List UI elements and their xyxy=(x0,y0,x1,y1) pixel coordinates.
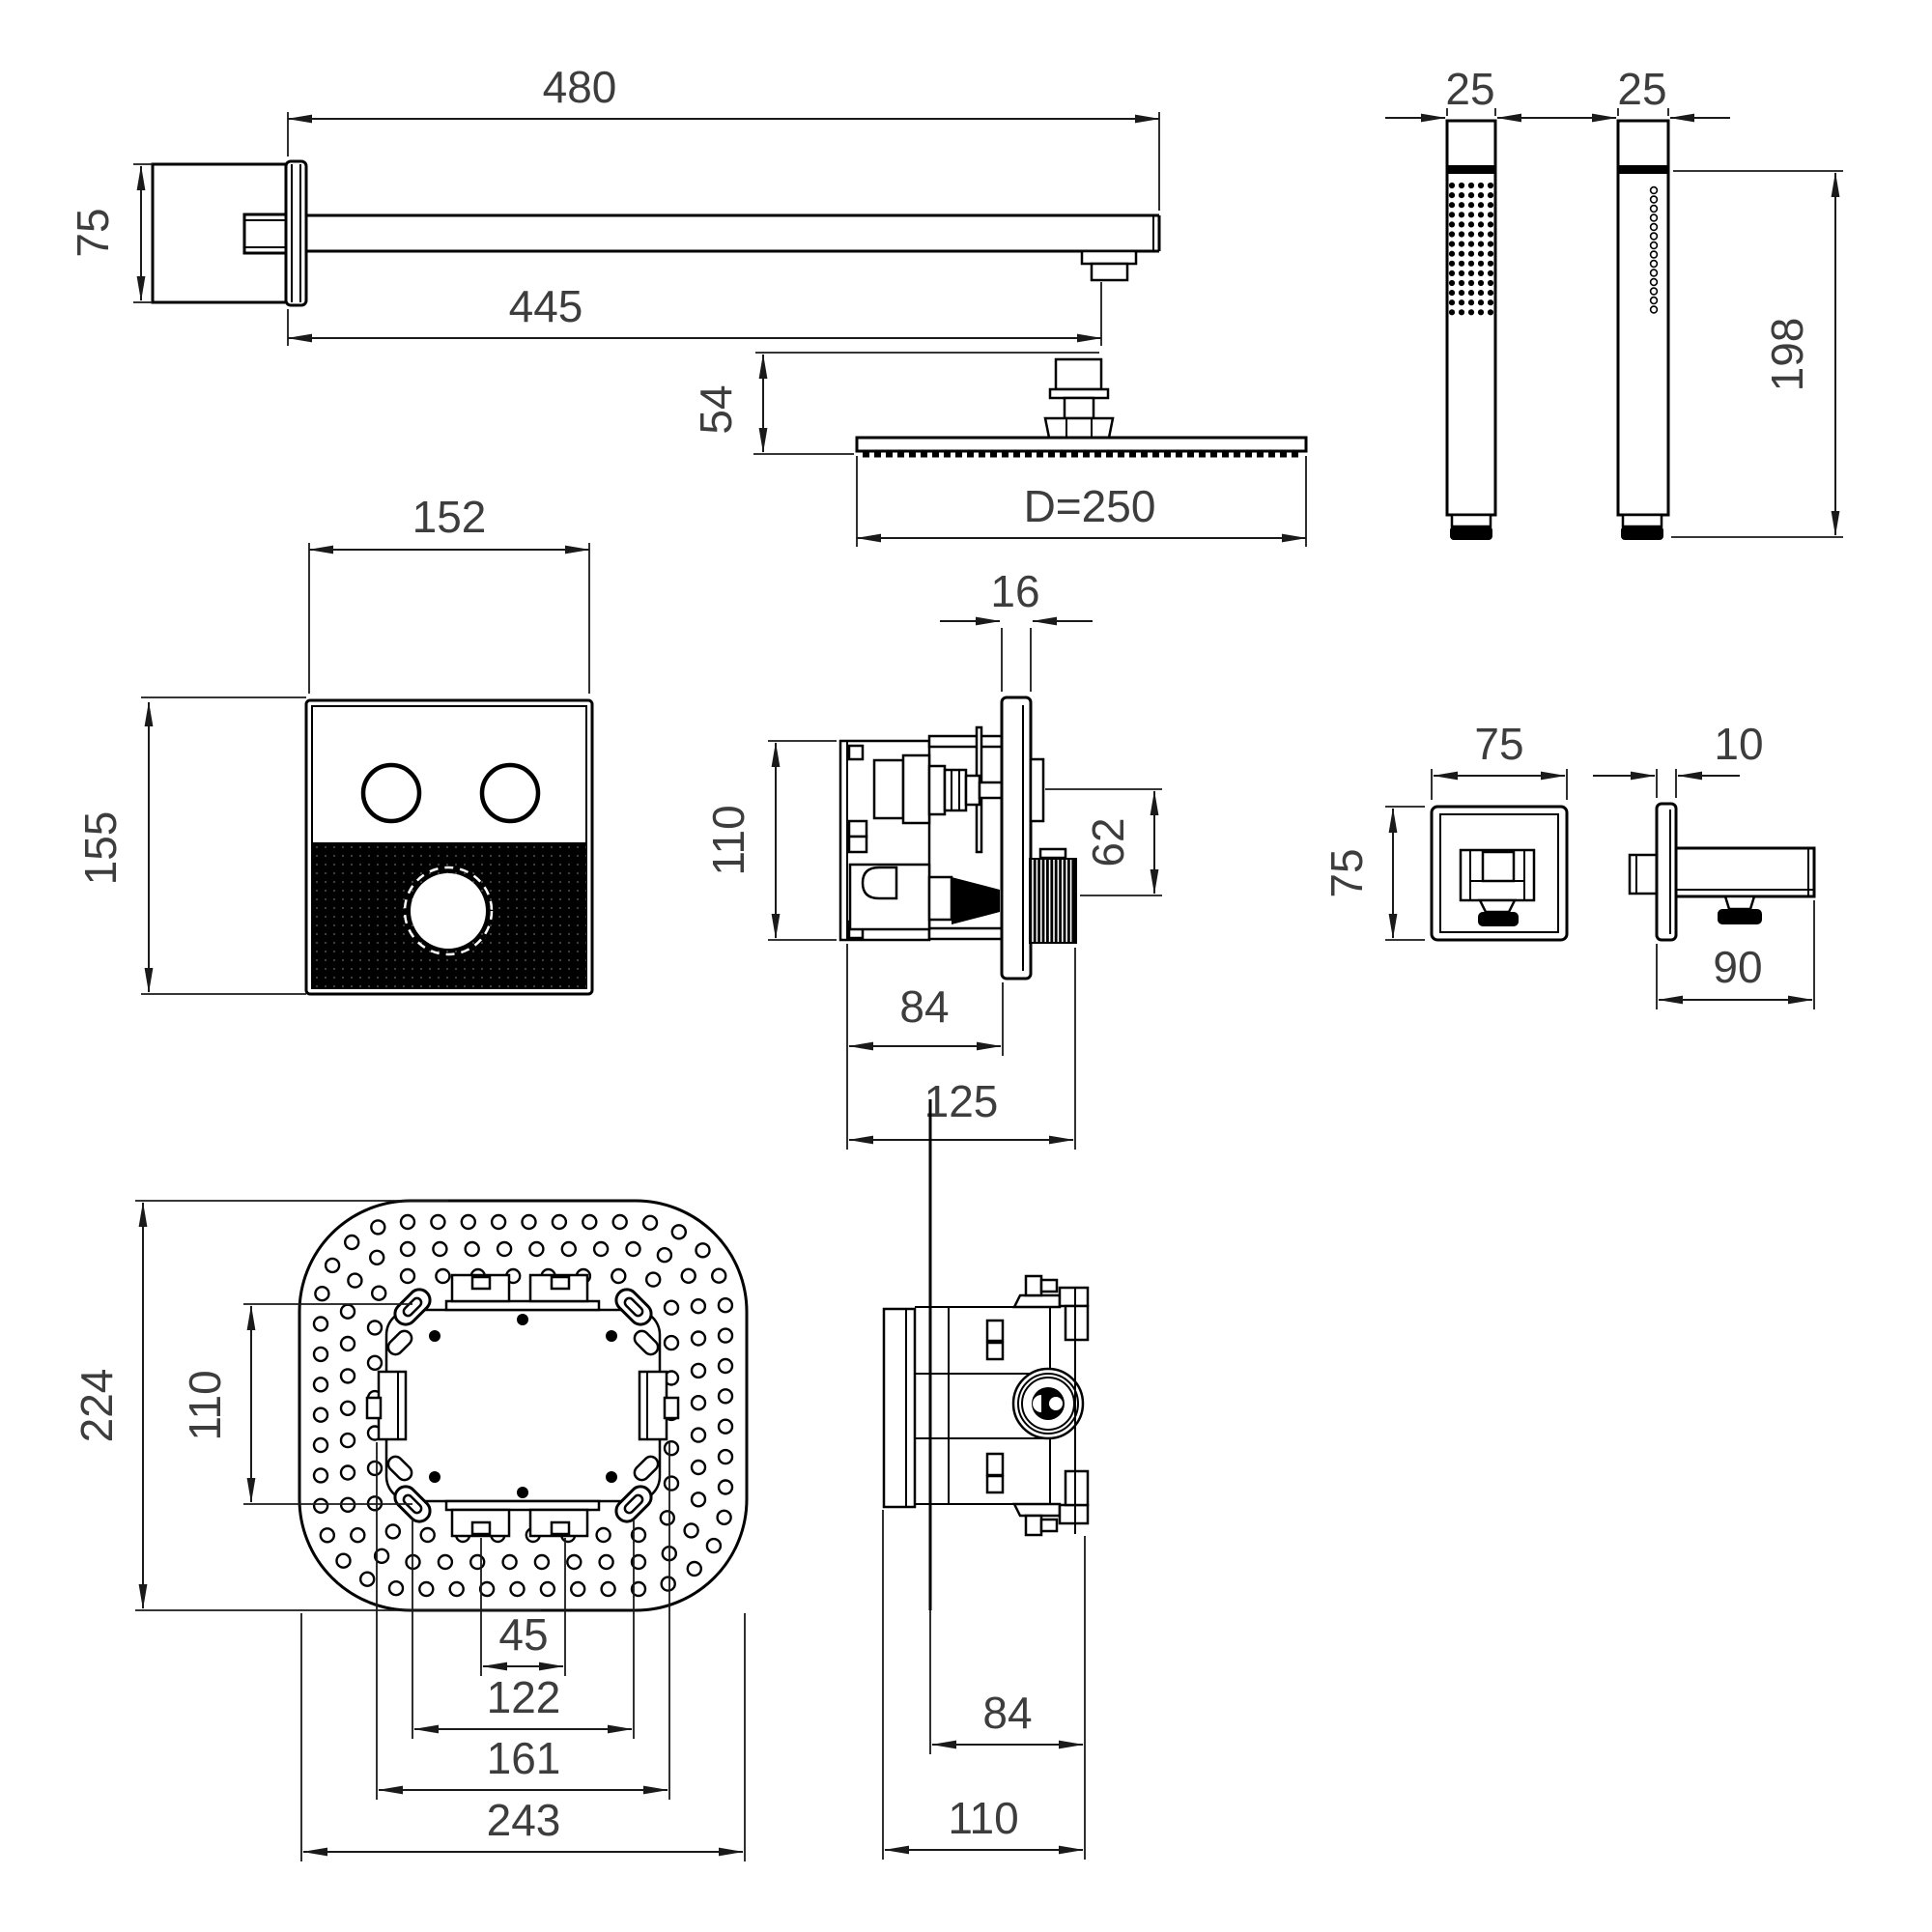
dim-label-hand-front-width: 25 xyxy=(1445,64,1494,114)
dim-hand-front-25: 25 xyxy=(1385,64,1557,118)
view-hand-shower-side: 25 198 xyxy=(1556,64,1843,540)
dim-label-elbow-arm: 90 xyxy=(1713,942,1762,992)
dim-label-bracket-width: 161 xyxy=(487,1733,561,1783)
dim-elbow-width-75: 75 xyxy=(1432,719,1567,800)
dim-label-head-diameter: D=250 xyxy=(1024,481,1156,531)
dim-label-arm-outlet: 445 xyxy=(509,281,583,331)
dim-label-flange-height: 75 xyxy=(68,208,118,257)
dim-label-slot-spacing-h: 122 xyxy=(487,1672,561,1722)
dim-label-panel-height: 155 xyxy=(75,811,126,886)
dim-panel-152: 152 xyxy=(309,492,589,694)
dim-hand-side-25: 25 xyxy=(1556,64,1730,118)
dim-hand-198: 198 xyxy=(1671,171,1843,537)
dim-label-plate-thickness: 16 xyxy=(990,566,1039,616)
dim-valve-84: 84 xyxy=(847,944,1003,1056)
view-control-panel: 152 155 xyxy=(75,492,592,994)
dim-panel-155: 155 xyxy=(75,697,306,994)
dim-label-elbow-plate: 10 xyxy=(1714,719,1763,769)
dim-label-box-depth-total: 110 xyxy=(948,1793,1018,1843)
dim-arm-480: 480 xyxy=(288,62,1159,211)
view-valve-side: 16 110 62 84 125 xyxy=(703,566,1162,1150)
dim-label-panel-width: 152 xyxy=(412,492,487,542)
view-valve-box: 84 110 xyxy=(883,1099,1088,1860)
view-head-back: 224 110 45 122 161 xyxy=(71,1201,747,1861)
dim-label-back-width: 243 xyxy=(487,1795,561,1845)
dim-flange-75: 75 xyxy=(68,164,153,302)
view-head-side: 54 D=250 xyxy=(691,353,1306,547)
drawing-canvas: 480 445 75 54 xyxy=(0,0,1932,1932)
dim-label-hand-length: 198 xyxy=(1762,318,1812,392)
dim-label-arm-length: 480 xyxy=(543,62,617,112)
technical-drawing: 480 445 75 54 xyxy=(0,0,1932,1932)
dim-label-back-height: 224 xyxy=(71,1369,122,1443)
dim-label-head-connector: 54 xyxy=(691,384,741,434)
dim-label-hand-side-width: 25 xyxy=(1617,64,1666,114)
dim-label-valve-depth-total: 125 xyxy=(924,1076,999,1126)
dim-elbow-plate-10: 10 xyxy=(1593,719,1764,798)
view-shower-arm: 480 445 75 xyxy=(68,62,1159,346)
dim-label-elbow-width: 75 xyxy=(1474,719,1523,769)
dim-arm-445: 445 xyxy=(288,281,1101,346)
dim-box-84: 84 xyxy=(930,1536,1085,1754)
dim-box-110: 110 xyxy=(883,1510,1085,1860)
dim-label-knob-offset: 62 xyxy=(1083,817,1133,867)
view-elbow-front: 75 75 xyxy=(1321,719,1567,940)
view-elbow-side: 10 90 xyxy=(1593,719,1814,1009)
dim-valve-110: 110 xyxy=(703,741,837,940)
dim-label-elbow-height: 75 xyxy=(1321,848,1372,897)
dim-label-inlet-spacing: 45 xyxy=(498,1609,548,1660)
dim-elbow-height-75: 75 xyxy=(1321,807,1425,940)
dim-label-back-slot-v: 110 xyxy=(180,1370,230,1440)
dim-head-diameter: D=250 xyxy=(857,456,1306,547)
dim-valve-125: 125 xyxy=(847,948,1075,1150)
dim-label-box-depth: 84 xyxy=(982,1688,1032,1738)
view-hand-shower-front: 25 xyxy=(1385,64,1557,540)
dim-valve-16: 16 xyxy=(940,566,1093,692)
dim-label-valve-height: 110 xyxy=(703,805,753,875)
dim-label-valve-depth-box: 84 xyxy=(899,981,949,1032)
